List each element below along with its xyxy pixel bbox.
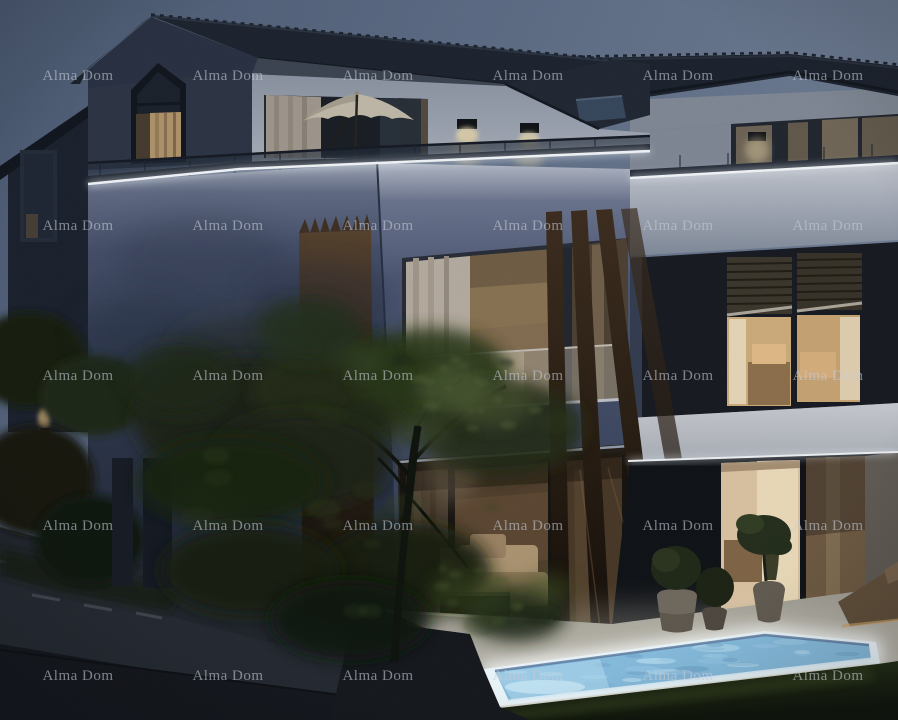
svg-text:Alma Dom: Alma Dom <box>42 368 113 384</box>
svg-text:Alma Dom: Alma Dom <box>192 518 263 534</box>
svg-text:Alma Dom: Alma Dom <box>792 668 863 684</box>
svg-text:Alma Dom: Alma Dom <box>642 68 713 84</box>
svg-text:Alma Dom: Alma Dom <box>642 218 713 234</box>
svg-text:Alma Dom: Alma Dom <box>792 368 863 384</box>
svg-text:Alma Dom: Alma Dom <box>342 668 413 684</box>
svg-text:Alma Dom: Alma Dom <box>492 368 563 384</box>
svg-text:Alma Dom: Alma Dom <box>342 368 413 384</box>
svg-text:Alma Dom: Alma Dom <box>492 218 563 234</box>
svg-text:Alma Dom: Alma Dom <box>42 668 113 684</box>
svg-text:Alma Dom: Alma Dom <box>792 68 863 84</box>
svg-text:Alma Dom: Alma Dom <box>642 668 713 684</box>
svg-text:Alma Dom: Alma Dom <box>792 218 863 234</box>
svg-text:Alma Dom: Alma Dom <box>342 218 413 234</box>
svg-text:Alma Dom: Alma Dom <box>642 518 713 534</box>
svg-text:Alma Dom: Alma Dom <box>192 218 263 234</box>
svg-text:Alma Dom: Alma Dom <box>492 668 563 684</box>
svg-text:Alma Dom: Alma Dom <box>42 68 113 84</box>
svg-text:Alma Dom: Alma Dom <box>492 68 563 84</box>
svg-text:Alma Dom: Alma Dom <box>342 68 413 84</box>
svg-text:Alma Dom: Alma Dom <box>42 518 113 534</box>
svg-text:Alma Dom: Alma Dom <box>492 518 563 534</box>
svg-text:Alma Dom: Alma Dom <box>192 668 263 684</box>
svg-text:Alma Dom: Alma Dom <box>642 368 713 384</box>
svg-text:Alma Dom: Alma Dom <box>792 518 863 534</box>
svg-text:Alma Dom: Alma Dom <box>342 518 413 534</box>
svg-text:Alma Dom: Alma Dom <box>192 68 263 84</box>
svg-text:Alma Dom: Alma Dom <box>192 368 263 384</box>
svg-text:Alma Dom: Alma Dom <box>42 218 113 234</box>
